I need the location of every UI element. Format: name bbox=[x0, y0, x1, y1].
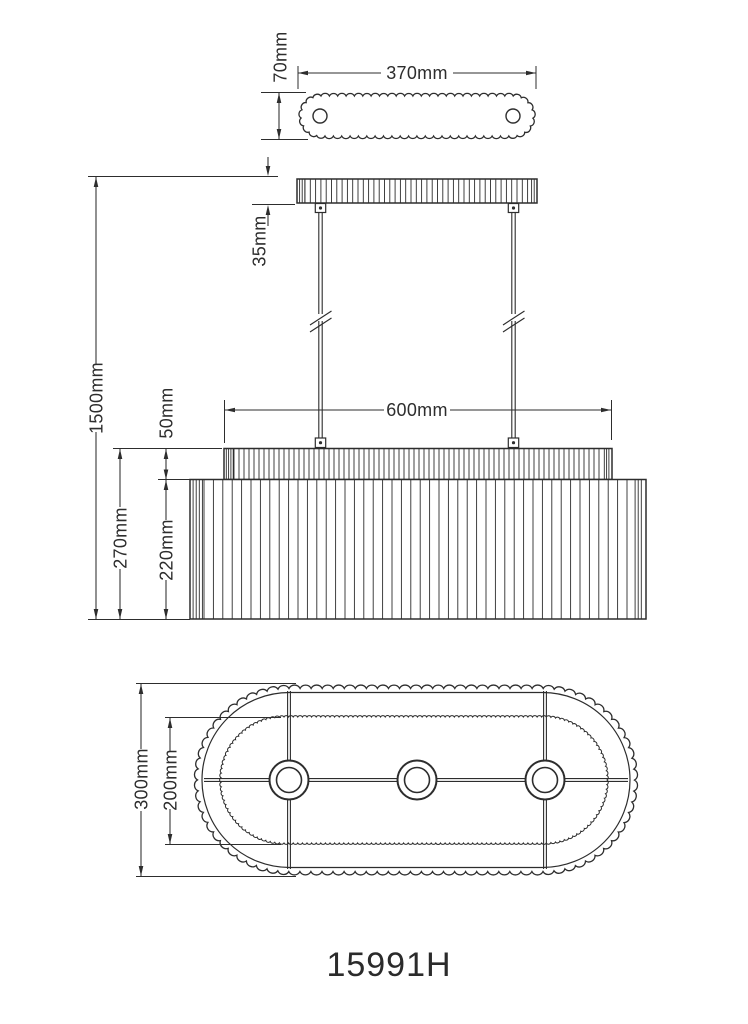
rod-break-mark bbox=[310, 311, 332, 332]
dim-label-overall-height: 1500mm bbox=[87, 362, 107, 434]
lamp-socket-outer bbox=[270, 761, 309, 800]
rod-fitting-screw bbox=[319, 441, 322, 444]
model-number: 15991H bbox=[326, 946, 451, 984]
rod-fitting-screw bbox=[512, 441, 515, 444]
plate-screw-hole-left bbox=[313, 109, 327, 123]
shade-lower-tier bbox=[190, 480, 646, 620]
dim-label-plate-width: 370mm bbox=[386, 63, 448, 83]
dim-label-shade-inner-depth: 200mm bbox=[161, 749, 181, 811]
plate-scalloped-outline bbox=[299, 93, 535, 138]
top-view-ceiling-plate bbox=[299, 93, 535, 138]
dim-label-shade-total-height: 270mm bbox=[111, 507, 131, 569]
rod-break-mark bbox=[503, 311, 525, 332]
rod-fitting-screw bbox=[319, 206, 322, 209]
dim-label-plate-depth: 70mm bbox=[271, 31, 291, 82]
dim-label-shade-body-height: 220mm bbox=[157, 519, 177, 581]
bottom-view-shade bbox=[194, 685, 637, 875]
chandelier-technical-drawing: 370mm 70mm 35mm 1500mm 600mm 50mm 270mm … bbox=[0, 0, 748, 1024]
dim-label-shade-top-width: 600mm bbox=[386, 400, 448, 420]
lamp-socket-outer bbox=[398, 761, 437, 800]
lamp-socket-outer bbox=[526, 761, 565, 800]
dim-label-canopy-height: 35mm bbox=[250, 215, 270, 266]
rod-fitting-screw bbox=[512, 206, 515, 209]
dim-label-shade-depth: 300mm bbox=[132, 748, 152, 810]
dim-label-shade-top-height: 50mm bbox=[157, 387, 177, 438]
plate-screw-hole-right bbox=[506, 109, 520, 123]
